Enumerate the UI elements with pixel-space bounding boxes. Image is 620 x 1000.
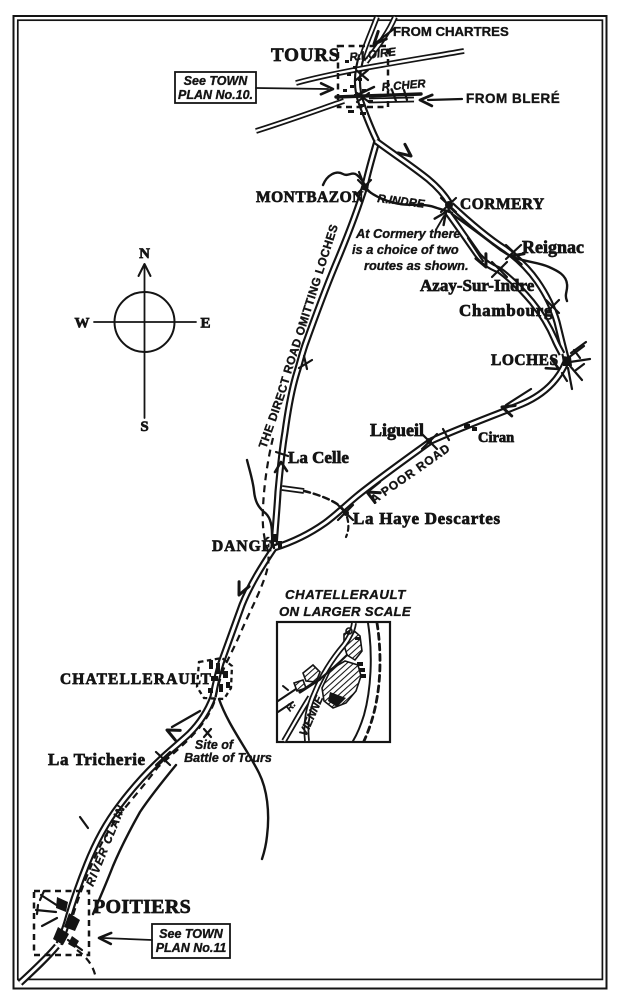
svg-text:TOURS: TOURS	[271, 45, 340, 66]
svg-text:CORMERY: CORMERY	[460, 196, 545, 213]
svg-text:La Tricherie: La Tricherie	[48, 750, 146, 769]
svg-text:E: E	[200, 316, 210, 332]
svg-text:Ciran: Ciran	[478, 430, 514, 446]
svg-text:Azay-Sur-Indre: Azay-Sur-Indre	[420, 276, 535, 295]
svg-text:Site of: Site of	[195, 738, 235, 752]
svg-text:LOCHES: LOCHES	[491, 352, 559, 369]
svg-text:PLAN No.11: PLAN No.11	[156, 941, 227, 955]
svg-text:ON LARGER SCALE: ON LARGER SCALE	[279, 604, 412, 619]
svg-text:Reignac: Reignac	[522, 237, 584, 257]
svg-text:N: N	[139, 246, 150, 262]
svg-text:PLAN No.10.: PLAN No.10.	[178, 88, 253, 102]
svg-text:La Haye Descartes: La Haye Descartes	[353, 509, 501, 528]
svg-text:CHATELLERAULT: CHATELLERAULT	[285, 587, 406, 602]
svg-text:is a choice of two: is a choice of two	[352, 242, 459, 257]
svg-text:Battle of Tours: Battle of Tours	[184, 751, 272, 765]
svg-text:La Celle: La Celle	[288, 448, 349, 467]
svg-text:At Cormery there: At Cormery there	[355, 226, 461, 241]
svg-text:FROM CHARTRES: FROM CHARTRES	[393, 24, 509, 39]
svg-text:See TOWN: See TOWN	[159, 927, 224, 941]
svg-text:Chambourg: Chambourg	[459, 301, 553, 320]
svg-text:POITIERS: POITIERS	[93, 896, 191, 918]
svg-text:FROM BLERÉ: FROM BLERÉ	[466, 91, 560, 106]
svg-text:See TOWN: See TOWN	[184, 74, 249, 88]
svg-text:routes as shown.: routes as shown.	[364, 258, 469, 273]
svg-text:S: S	[140, 419, 148, 435]
svg-text:DANGÉ: DANGÉ	[212, 538, 273, 555]
svg-text:CHATELLERAULT: CHATELLERAULT	[60, 671, 212, 688]
svg-text:Ligueil: Ligueil	[370, 420, 424, 440]
svg-text:MONTBAZON: MONTBAZON	[256, 189, 364, 206]
svg-text:W: W	[75, 316, 90, 332]
